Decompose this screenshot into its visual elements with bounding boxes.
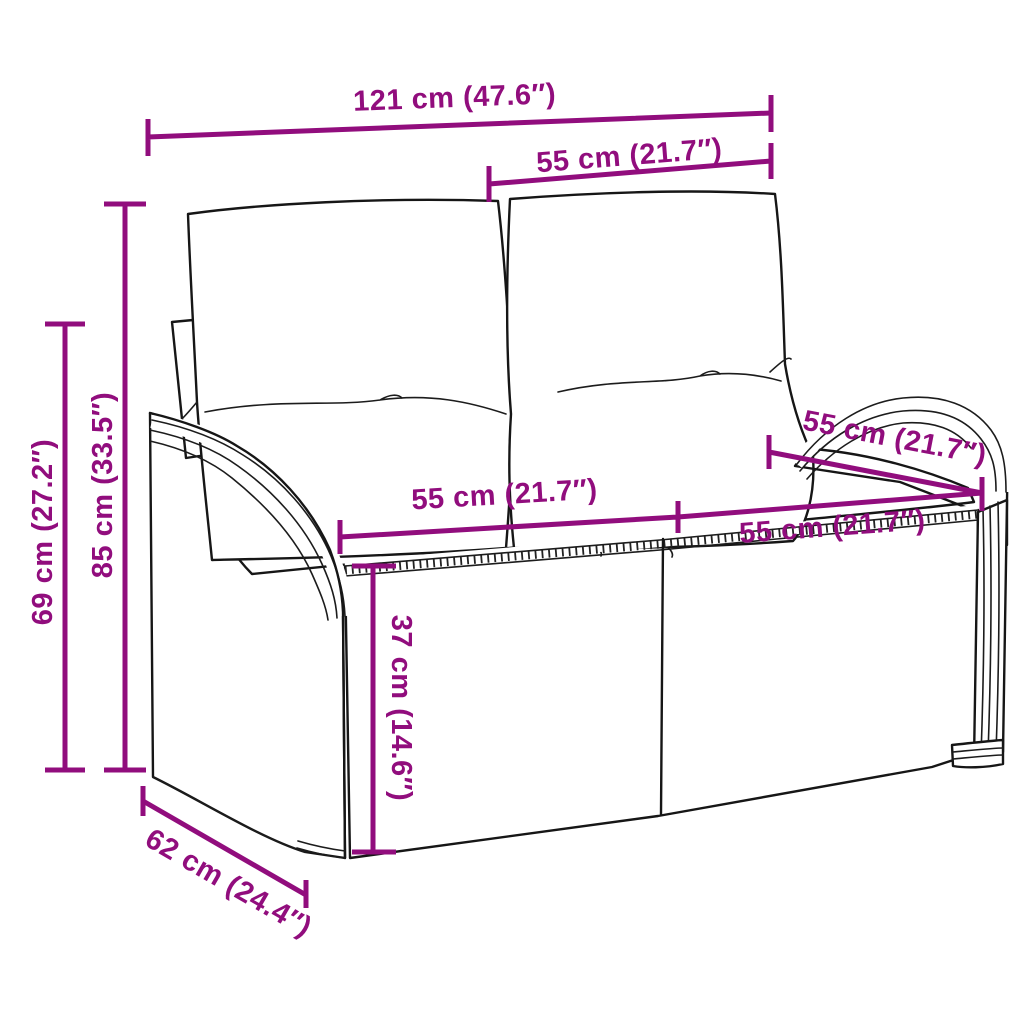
- dim-overall-depth-label: 62 cm (24.4″): [140, 823, 317, 944]
- base-section-seam: [661, 539, 663, 814]
- dimension-diagram: 121 cm (47.6″) 55 cm (21.7″) 85 cm (33.5…: [0, 0, 1024, 1024]
- right-armrest-foot: [952, 740, 1003, 767]
- dim-total-width-label: 121 cm (47.6″): [353, 78, 557, 118]
- dim-total-height: 85 cm (33.5″): [87, 204, 146, 770]
- dim-seat-height-label: 37 cm (14.6″): [385, 615, 417, 801]
- dim-armrest-height: 69 cm (27.2″): [27, 324, 85, 770]
- dim-total-height-label: 85 cm (33.5″): [87, 392, 119, 578]
- dim-overall-depth: 62 cm (24.4″): [140, 786, 317, 944]
- diagram-canvas: 121 cm (47.6″) 55 cm (21.7″) 85 cm (33.5…: [0, 0, 1024, 1024]
- dim-seat-height: 37 cm (14.6″): [352, 566, 417, 852]
- dim-armrest-height-label: 69 cm (27.2″): [27, 439, 59, 625]
